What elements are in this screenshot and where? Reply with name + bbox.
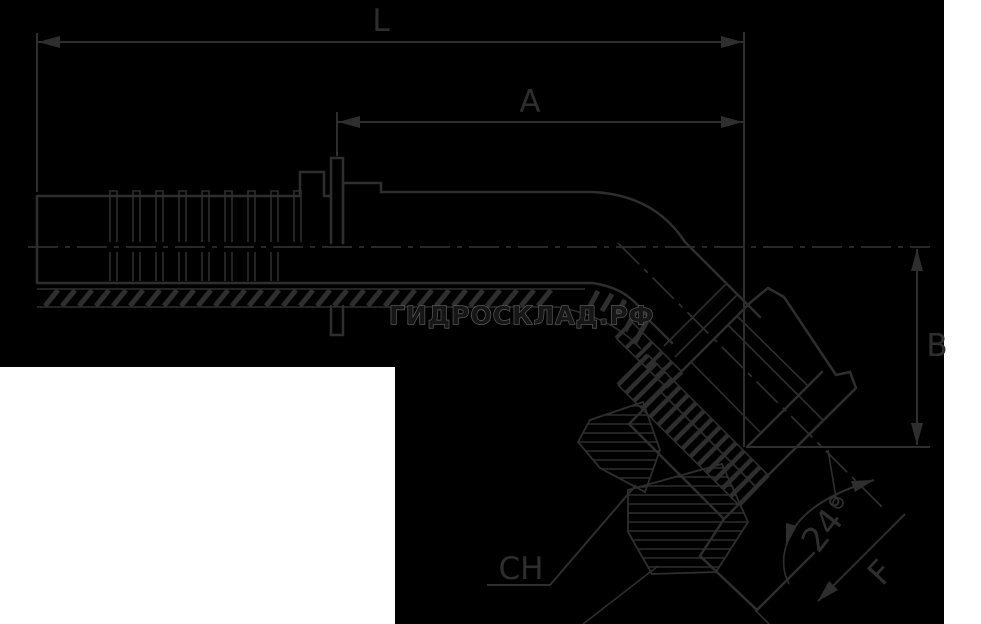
stop-tab-bottom [331, 306, 343, 335]
nut-section-patch-lower [620, 464, 755, 574]
shank-collar [300, 172, 324, 196]
extension-line-F [755, 610, 769, 624]
swivel-nut [570, 288, 856, 624]
nut-section-patch-upper [570, 402, 670, 492]
stop-tab-top [331, 158, 343, 243]
dimension-L-label: L [372, 3, 390, 39]
ferrule-profile [343, 183, 592, 243]
thread-size-label: F [860, 552, 901, 592]
arrow-right [721, 116, 743, 128]
arrow-left [338, 116, 360, 128]
wrench-size-annotation: CH [487, 485, 636, 587]
fitting-drawing: L A B 24° [0, 0, 981, 624]
nut-hex-flat-lines [661, 325, 823, 487]
dimension-B-label: B [926, 328, 947, 364]
arrow-up [911, 249, 923, 271]
arrow-right [721, 36, 743, 48]
nut-edge-extension [583, 566, 658, 624]
nut-upper-silhouette [751, 288, 856, 388]
barb-serrations [110, 191, 301, 281]
watermark-text: ГИДРОСКЛАД.РФ [389, 301, 654, 330]
dimension-A-label: A [519, 84, 540, 120]
cone-angle-label: 24° [794, 488, 863, 560]
tube-collar-lines [664, 284, 737, 357]
arc-arrow-right [851, 480, 874, 492]
nut-thread-ribs [618, 355, 768, 505]
arrow-down [911, 423, 923, 445]
technical-drawing-canvas: L A B 24° [0, 0, 981, 624]
dimension-A: A [337, 84, 744, 156]
wrench-size-label: CH [499, 551, 544, 587]
arrow-left [38, 36, 60, 48]
